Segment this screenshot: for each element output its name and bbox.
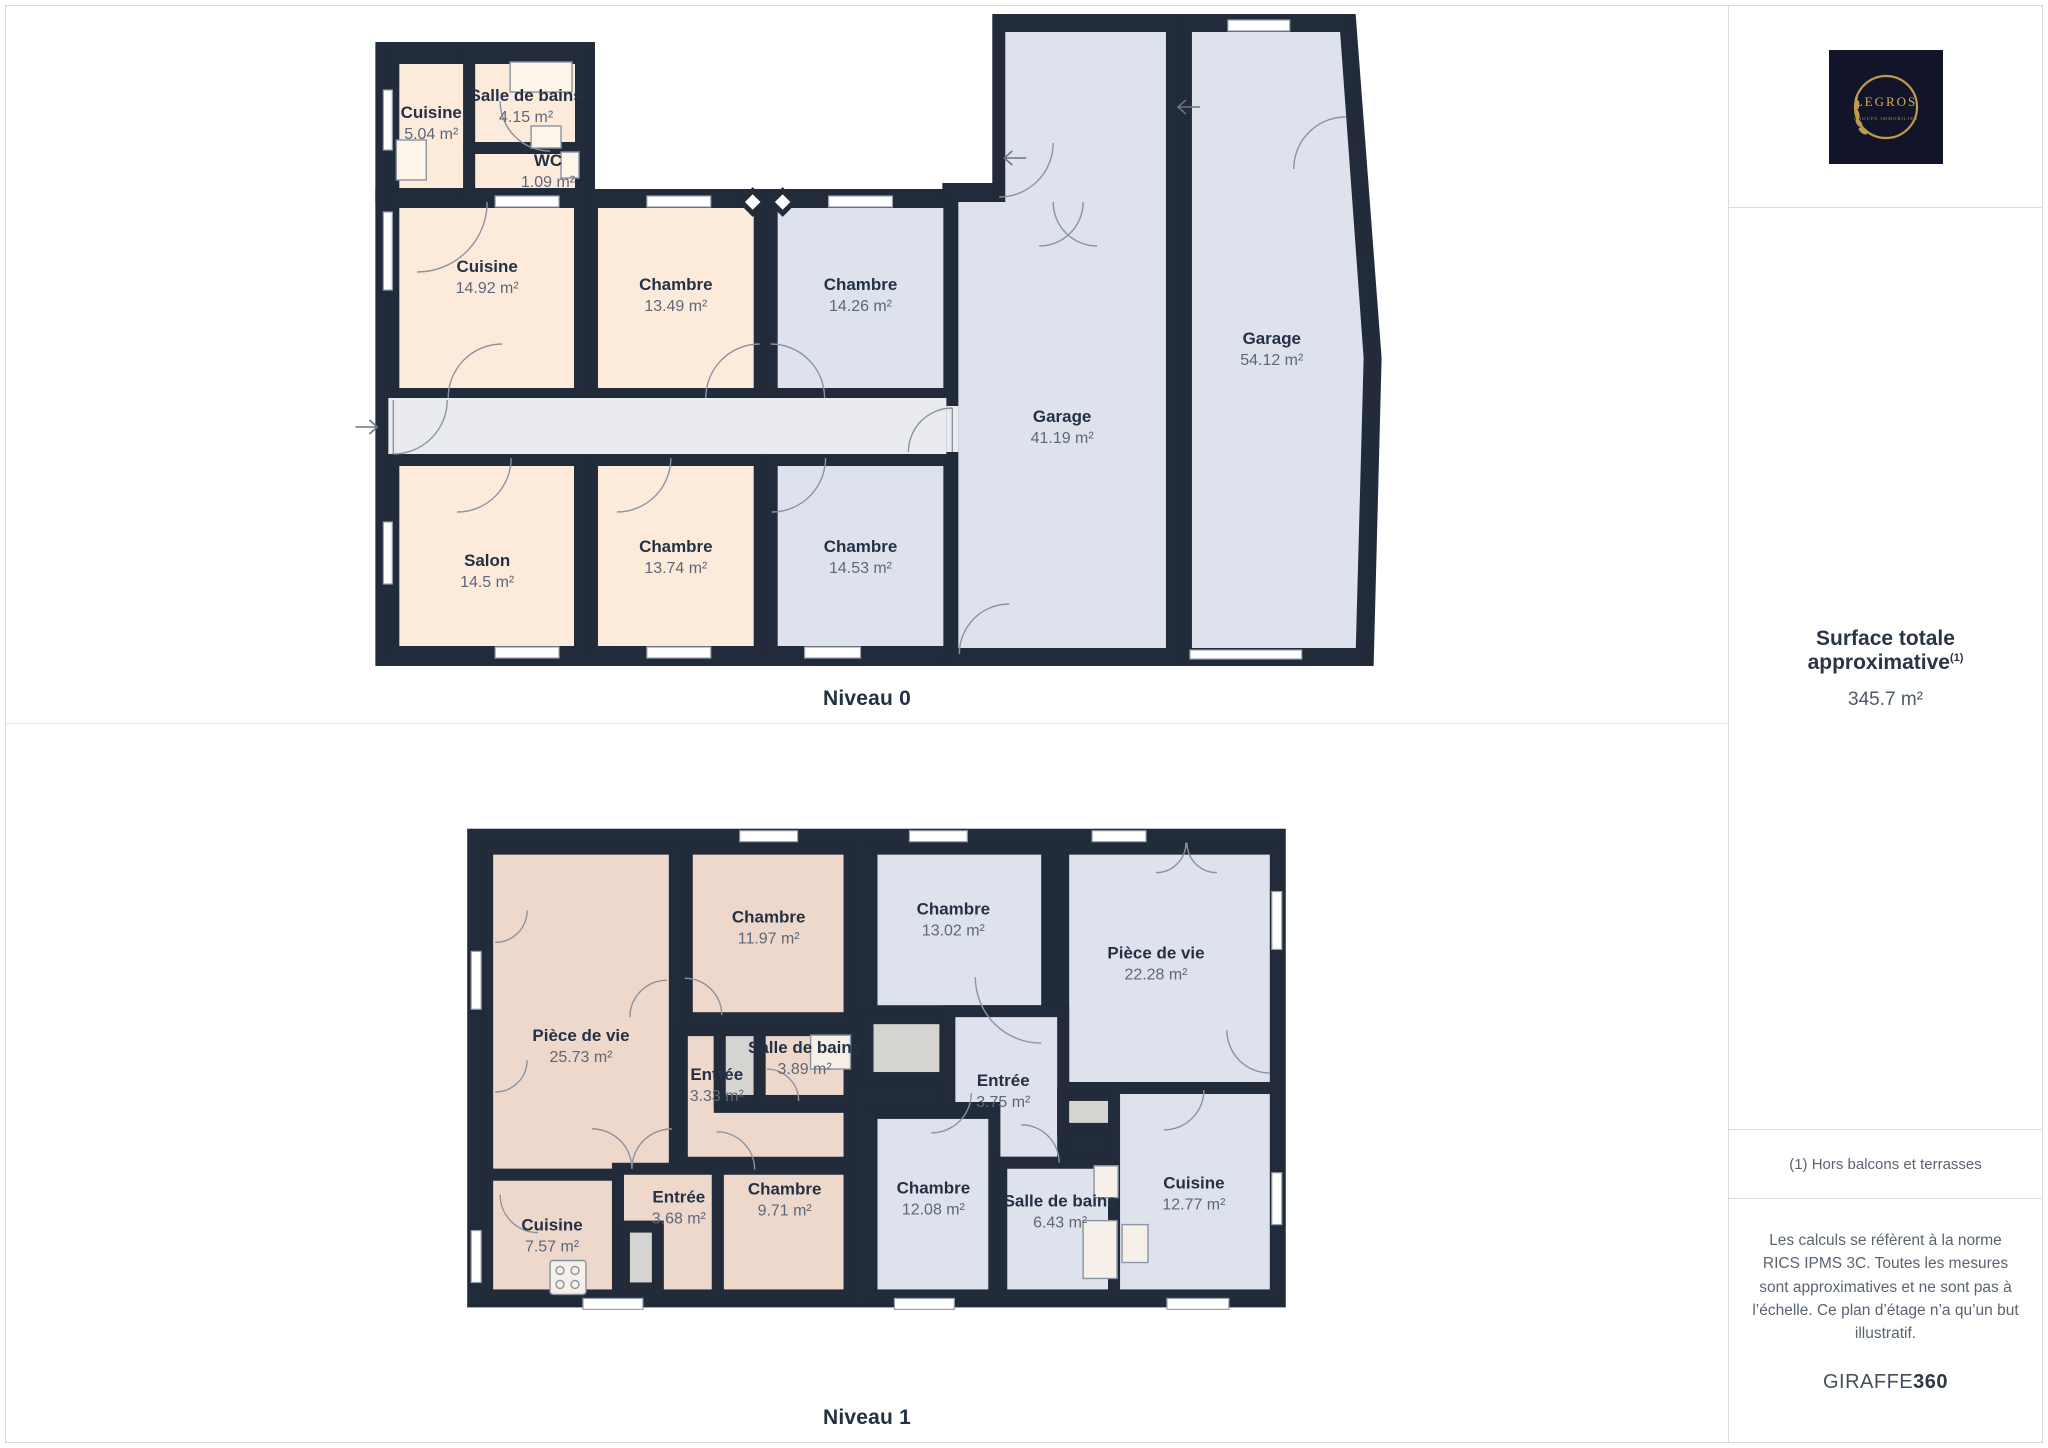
room-area-label: 25.73 m²: [549, 1049, 613, 1066]
room-area-label: 7.57 m²: [525, 1239, 580, 1256]
disclaimer-text: Les calculs se réfèrent à la norme RICS …: [1752, 1229, 2020, 1345]
room-name-label: Chambre: [824, 537, 897, 556]
room-area-label: 14.5 m²: [460, 574, 515, 591]
brand-footer: GIRAFFE360: [1823, 1371, 1948, 1394]
room-name-label: Salon: [464, 551, 510, 570]
footnote-text: (1) Hors balcons et terrasses: [1789, 1156, 1982, 1173]
room-name-label: Chambre: [748, 1180, 822, 1199]
room-area-label: 13.49 m²: [644, 298, 708, 315]
room-area-label: 3.33 m²: [690, 1088, 745, 1105]
room-area-label: 22.28 m²: [1124, 966, 1188, 983]
floorplan-niveau-1: Pièce de vie25.73 m²Chambre11.97 m²Entré…: [6, 724, 1728, 1442]
floorplan-niveau-0: Cuisine5.04 m²Salle de bains4.15 m²WC1.0…: [6, 6, 1728, 723]
room-name-label: Chambre: [639, 537, 712, 556]
room-name-label: Garage: [1243, 329, 1301, 348]
room-area-label: 14.92 m²: [456, 280, 520, 297]
surface-summary: Surface totale approximative(1) 345.7 m²: [1729, 208, 2042, 1130]
room-area-label: 11.97 m²: [738, 930, 800, 947]
room-area-label: 14.26 m²: [829, 298, 893, 315]
room-name-label: Salle de bains: [748, 1038, 861, 1057]
room-name-label: WC: [534, 151, 562, 170]
room-area-label: 12.08 m²: [902, 1202, 966, 1219]
room-name-label: Entrée: [652, 1188, 705, 1207]
disclaimer-cell: Les calculs se réfèrent à la norme RICS …: [1729, 1199, 2042, 1442]
room-name-label: Entrée: [690, 1065, 743, 1084]
floor-label-niveau-1: Niveau 1: [6, 1406, 1728, 1430]
room: [867, 1018, 945, 1078]
floorplan-panel: Cuisine5.04 m²Salle de bains4.15 m²WC1.0…: [6, 6, 1728, 1442]
room-area-label: 3.89 m²: [778, 1061, 833, 1078]
rooms-layer: [487, 849, 1276, 1296]
room-name-label: Garage: [1033, 407, 1091, 426]
room-area-label: 9.71 m²: [758, 1203, 813, 1220]
logo-tagline-text: GROUPE IMMOBILIER: [1853, 116, 1917, 121]
room-name-label: Cuisine: [401, 103, 462, 122]
agency-logo-graphic: LEGROS GROUPE IMMOBILIER: [1829, 50, 1943, 164]
room-name-label: Chambre: [917, 899, 991, 918]
room-name-label: Cuisine: [521, 1216, 582, 1235]
surface-value: 345.7 m²: [1848, 689, 1923, 711]
brand-footer-name: GIRAFFE: [1823, 1371, 1913, 1393]
footnote-cell: (1) Hors balcons et terrasses: [1729, 1130, 2042, 1199]
floor-section-niveau-0: Cuisine5.04 m²Salle de bains4.15 m²WC1.0…: [6, 6, 1728, 724]
room-area-label: 54.12 m²: [1240, 352, 1304, 369]
room-name-label: Chambre: [897, 1179, 971, 1198]
room-area-label: 3.75 m²: [976, 1094, 1031, 1111]
room-name-label: Chambre: [824, 275, 897, 294]
surface-title: Surface totale approximative(1): [1743, 627, 2028, 675]
room-area-label: 14.53 m²: [829, 560, 893, 577]
room-name-label: Salle de bains: [470, 86, 583, 105]
room-name-label: Pièce de vie: [1107, 943, 1204, 962]
room-area-label: 1.09 m²: [521, 174, 576, 191]
room: [393, 202, 580, 394]
room: [388, 398, 952, 456]
room-area-label: 5.04 m²: [404, 126, 459, 143]
room-area-label: 13.74 m²: [644, 560, 708, 577]
agency-logo: LEGROS GROUPE IMMOBILIER: [1829, 50, 1943, 164]
room-area-label: 3.68 m²: [652, 1211, 707, 1228]
room-area-label: 4.15 m²: [499, 109, 554, 126]
sidebar: LEGROS GROUPE IMMOBILIER Surface totale …: [1728, 6, 2042, 1442]
room-area-label: 6.43 m²: [1033, 1215, 1088, 1232]
brand-footer-suffix: 360: [1913, 1371, 1948, 1393]
surface-title-superscript: (1): [1950, 652, 1963, 664]
room-name-label: Pièce de vie: [532, 1026, 629, 1045]
floor-section-niveau-1: Pièce de vie25.73 m²Chambre11.97 m²Entré…: [6, 724, 1728, 1442]
room-area-label: 12.77 m²: [1162, 1197, 1226, 1214]
room-area-label: 13.02 m²: [922, 922, 986, 939]
surface-title-text: Surface totale approximative: [1808, 627, 1955, 674]
room-name-label: Salle de bains: [1004, 1192, 1117, 1211]
room-name-label: Cuisine: [1163, 1174, 1224, 1193]
room: [1063, 1095, 1114, 1129]
logo-cell: LEGROS GROUPE IMMOBILIER: [1729, 6, 2042, 208]
room: [487, 849, 675, 1175]
page: Cuisine5.04 m²Salle de bains4.15 m²WC1.0…: [5, 5, 2043, 1443]
room: [624, 1227, 658, 1289]
logo-brand-text: LEGROS: [1854, 94, 1917, 109]
floor-label-niveau-0: Niveau 0: [6, 687, 1728, 711]
room-area-label: 41.19 m²: [1031, 430, 1095, 447]
room: [952, 26, 1172, 654]
room-name-label: Chambre: [732, 907, 806, 926]
room-name-label: Chambre: [639, 275, 712, 294]
room-name-label: Cuisine: [457, 257, 518, 276]
room-name-label: Entrée: [977, 1071, 1030, 1090]
